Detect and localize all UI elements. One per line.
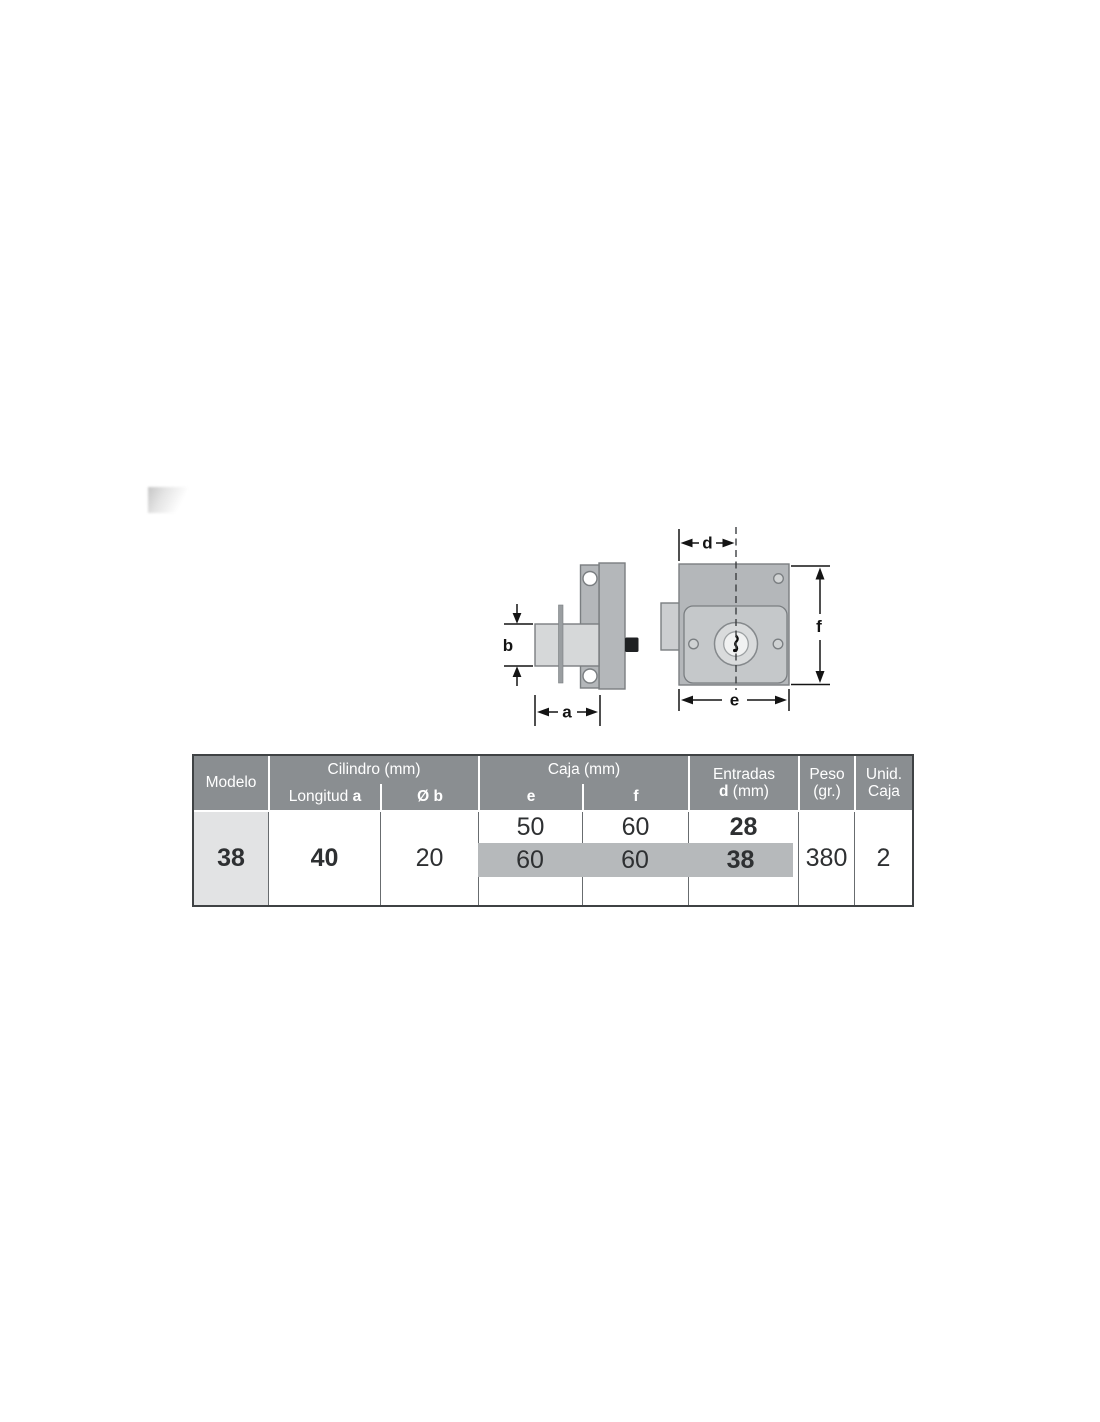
col-header-unid-line1: Unid. [866, 766, 902, 783]
col-header-peso-line2: (gr.) [813, 783, 841, 800]
col-group-header-cilindro-label: Cilindro (mm) [328, 761, 421, 778]
screw-hole-icon [773, 639, 783, 649]
col-header-peso: Peso (gr.) [798, 756, 854, 812]
col-header-entradas: Entradas d (mm) [688, 756, 798, 812]
cell-unid-caja-value: 2 [854, 812, 912, 905]
col-header-unid-caja: Unid. Caja [854, 756, 912, 812]
col-header-diam-b: Ø b [380, 784, 478, 812]
col-header-modelo: Modelo [194, 756, 268, 812]
product-spec-sheet: b a [0, 0, 1100, 1422]
cell-peso-value: 380 [798, 812, 854, 905]
cell-f-row1: 60 [582, 812, 688, 843]
side-cylinder [535, 624, 599, 666]
lock-front-view: d f e [661, 527, 830, 711]
front-bolt [661, 603, 680, 650]
cell-d-row3 [688, 877, 798, 905]
screw-hole-icon [689, 639, 699, 649]
dimension-label-d: d [702, 534, 712, 553]
cell-e-row1: 50 [478, 812, 582, 843]
lock-technical-drawing: b a [488, 515, 840, 730]
side-body-slab [599, 563, 625, 689]
side-trim-rod [559, 605, 564, 683]
col-group-header-cilindro: Cilindro (mm) [268, 756, 478, 784]
col-header-modelo-label: Modelo [206, 774, 257, 791]
col-header-f-label: f [633, 788, 638, 805]
keyhole-dot [733, 649, 736, 652]
col-header-entradas-line1: Entradas [713, 766, 775, 783]
cell-f-row2: 60 [582, 843, 688, 877]
cell-d-row2: 38 [688, 843, 798, 877]
longitud-label: Longitud [289, 788, 353, 805]
screw-hole-icon [583, 669, 597, 683]
col-header-longitud-a-label: Longitud a [289, 788, 361, 805]
col-header-peso-line1: Peso [809, 766, 844, 783]
col-header-entradas-line2: d (mm) [719, 783, 769, 800]
longitud-var: a [353, 788, 362, 805]
cell-e-row2: 60 [478, 843, 582, 877]
col-header-e: e [478, 784, 582, 812]
screw-hole-icon [583, 572, 597, 586]
dimension-label-b: b [503, 636, 513, 655]
col-group-header-caja: Caja (mm) [478, 756, 688, 784]
entradas-var: d [719, 783, 728, 800]
col-group-header-caja-label: Caja (mm) [548, 761, 620, 778]
dimension-label-a: a [562, 703, 572, 722]
screw-hole-icon [774, 574, 784, 584]
dimension-label-e: e [730, 691, 739, 710]
col-header-diam-b-label: Ø b [417, 788, 443, 805]
cell-e-row3 [478, 877, 582, 905]
cell-d-row1: 28 [688, 812, 798, 843]
dimension-f [791, 566, 830, 685]
scan-artifact-smudge [148, 487, 188, 513]
entradas-unit: (mm) [729, 783, 769, 800]
dimension-label-f: f [816, 617, 822, 636]
col-header-f: f [582, 784, 688, 812]
cell-modelo-value: 38 [194, 812, 268, 905]
cell-diam-b-value: 20 [380, 812, 478, 905]
lock-side-view: b a [503, 563, 639, 726]
side-knob [625, 638, 639, 653]
col-header-e-label: e [527, 788, 536, 805]
cell-f-row3 [582, 877, 688, 905]
col-header-unid-line2: Caja [868, 783, 900, 800]
cell-longitud-a-value: 40 [268, 812, 380, 905]
spec-table: Modelo Cilindro (mm) Caja (mm) Entradas … [192, 754, 914, 907]
col-header-longitud-a: Longitud a [268, 784, 380, 812]
